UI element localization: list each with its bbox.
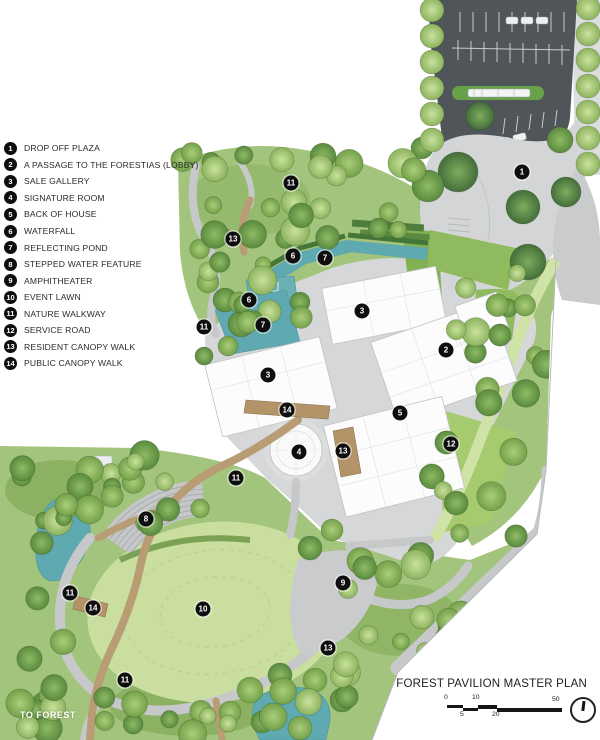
legend-item-number: 9 bbox=[4, 274, 17, 287]
legend-item-number: 14 bbox=[4, 357, 17, 370]
legend-item-number: 11 bbox=[4, 307, 17, 320]
legend-item: 7REFLECTING POND bbox=[4, 239, 198, 256]
legend-item-number: 13 bbox=[4, 340, 17, 353]
legend-item-label: WATERFALL bbox=[24, 226, 76, 236]
plan-title: FOREST PAVILION MASTER PLAN bbox=[396, 678, 587, 690]
plan-marker: 11 bbox=[118, 673, 133, 688]
shuttle-bus bbox=[468, 89, 530, 97]
scale-segment bbox=[447, 705, 463, 708]
scale-tick-label: 50 bbox=[552, 696, 560, 703]
plan-marker: 3 bbox=[261, 368, 276, 383]
legend-item: 6WATERFALL bbox=[4, 223, 198, 240]
plan-marker: 4 bbox=[292, 445, 307, 460]
legend-item: 10EVENT LAWN bbox=[4, 289, 198, 306]
plan-marker: 13 bbox=[226, 232, 241, 247]
legend-item-number: 2 bbox=[4, 158, 17, 171]
legend-item-number: 12 bbox=[4, 324, 17, 337]
scale-bar: 0 10 50 5 20 bbox=[440, 694, 570, 720]
plan-marker: 6 bbox=[286, 249, 301, 264]
legend-item-label: A PASSAGE TO THE FORESTIAS (LOBBY) bbox=[24, 160, 198, 170]
plan-marker: 8 bbox=[139, 512, 154, 527]
legend-item-number: 3 bbox=[4, 175, 17, 188]
legend-item-label: SIGNATURE ROOM bbox=[24, 193, 105, 203]
legend-item: 1DROP OFF PLAZA bbox=[4, 140, 198, 157]
plan-marker: 11 bbox=[229, 471, 244, 486]
plan-marker: 13 bbox=[321, 641, 336, 656]
legend: 1DROP OFF PLAZA 2A PASSAGE TO THE FOREST… bbox=[4, 140, 198, 372]
legend-item-label: AMPHITHEATER bbox=[24, 276, 93, 286]
plan-marker: 3 bbox=[355, 304, 370, 319]
legend-item-number: 6 bbox=[4, 225, 17, 238]
plan-marker: 14 bbox=[280, 403, 295, 418]
legend-item: 8STEPPED WATER FEATURE bbox=[4, 256, 198, 273]
master-plan-page: 1DROP OFF PLAZA 2A PASSAGE TO THE FOREST… bbox=[0, 0, 600, 740]
plan-marker: 7 bbox=[256, 318, 271, 333]
legend-item-label: REFLECTING POND bbox=[24, 243, 108, 253]
legend-item: 13RESIDENT CANOPY WALK bbox=[4, 339, 198, 356]
legend-item-label: EVENT LAWN bbox=[24, 292, 81, 302]
legend-item: 3SALE GALLERY bbox=[4, 173, 198, 190]
plan-marker: 6 bbox=[242, 293, 257, 308]
plan-marker: 2 bbox=[439, 343, 454, 358]
scale-tick-label: 10 bbox=[472, 694, 480, 701]
legend-item: 14PUBLIC CANOPY WALK bbox=[4, 355, 198, 372]
legend-item: 11NATURE WALKWAY bbox=[4, 305, 198, 322]
legend-item-number: 10 bbox=[4, 291, 17, 304]
scale-tick-label: 5 bbox=[460, 711, 464, 718]
legend-item: 2A PASSAGE TO THE FORESTIAS (LOBBY) bbox=[4, 157, 198, 174]
plan-marker: 5 bbox=[393, 406, 408, 421]
plan-marker: 11 bbox=[197, 320, 212, 335]
legend-item-label: SERVICE ROAD bbox=[24, 325, 91, 335]
legend-item: 5BACK OF HOUSE bbox=[4, 206, 198, 223]
legend-item-label: BACK OF HOUSE bbox=[24, 209, 97, 219]
legend-item: 12SERVICE ROAD bbox=[4, 322, 198, 339]
plan-marker: 11 bbox=[63, 586, 78, 601]
plan-marker: 14 bbox=[86, 601, 101, 616]
legend-item-number: 8 bbox=[4, 258, 17, 271]
legend-item: 4SIGNATURE ROOM bbox=[4, 190, 198, 207]
plan-marker: 11 bbox=[284, 176, 299, 191]
scale-segment bbox=[478, 705, 497, 709]
plan-marker: 13 bbox=[336, 444, 351, 459]
scale-tick-label: 20 bbox=[492, 711, 500, 718]
legend-item-number: 1 bbox=[4, 142, 17, 155]
legend-item-label: RESIDENT CANOPY WALK bbox=[24, 342, 135, 352]
north-arrow-icon bbox=[570, 697, 596, 723]
legend-item-label: NATURE WALKWAY bbox=[24, 309, 106, 319]
plan-marker: 1 bbox=[515, 165, 530, 180]
legend-item-label: DROP OFF PLAZA bbox=[24, 143, 100, 153]
scale-segment bbox=[463, 708, 478, 711]
legend-item-number: 5 bbox=[4, 208, 17, 221]
legend-item-label: PUBLIC CANOPY WALK bbox=[24, 358, 123, 368]
to-forest-label: TO FOREST bbox=[20, 710, 76, 720]
legend-item-label: SALE GALLERY bbox=[24, 176, 90, 186]
plan-marker: 9 bbox=[336, 576, 351, 591]
plan-marker: 10 bbox=[196, 602, 211, 617]
scale-segment bbox=[497, 708, 562, 712]
legend-item: 9AMPHITHEATER bbox=[4, 272, 198, 289]
scale-tick-label: 0 bbox=[444, 694, 448, 701]
legend-item-number: 4 bbox=[4, 191, 17, 204]
legend-item-label: STEPPED WATER FEATURE bbox=[24, 259, 142, 269]
plan-marker: 7 bbox=[318, 251, 333, 266]
plan-marker: 12 bbox=[444, 437, 459, 452]
legend-item-number: 7 bbox=[4, 241, 17, 254]
